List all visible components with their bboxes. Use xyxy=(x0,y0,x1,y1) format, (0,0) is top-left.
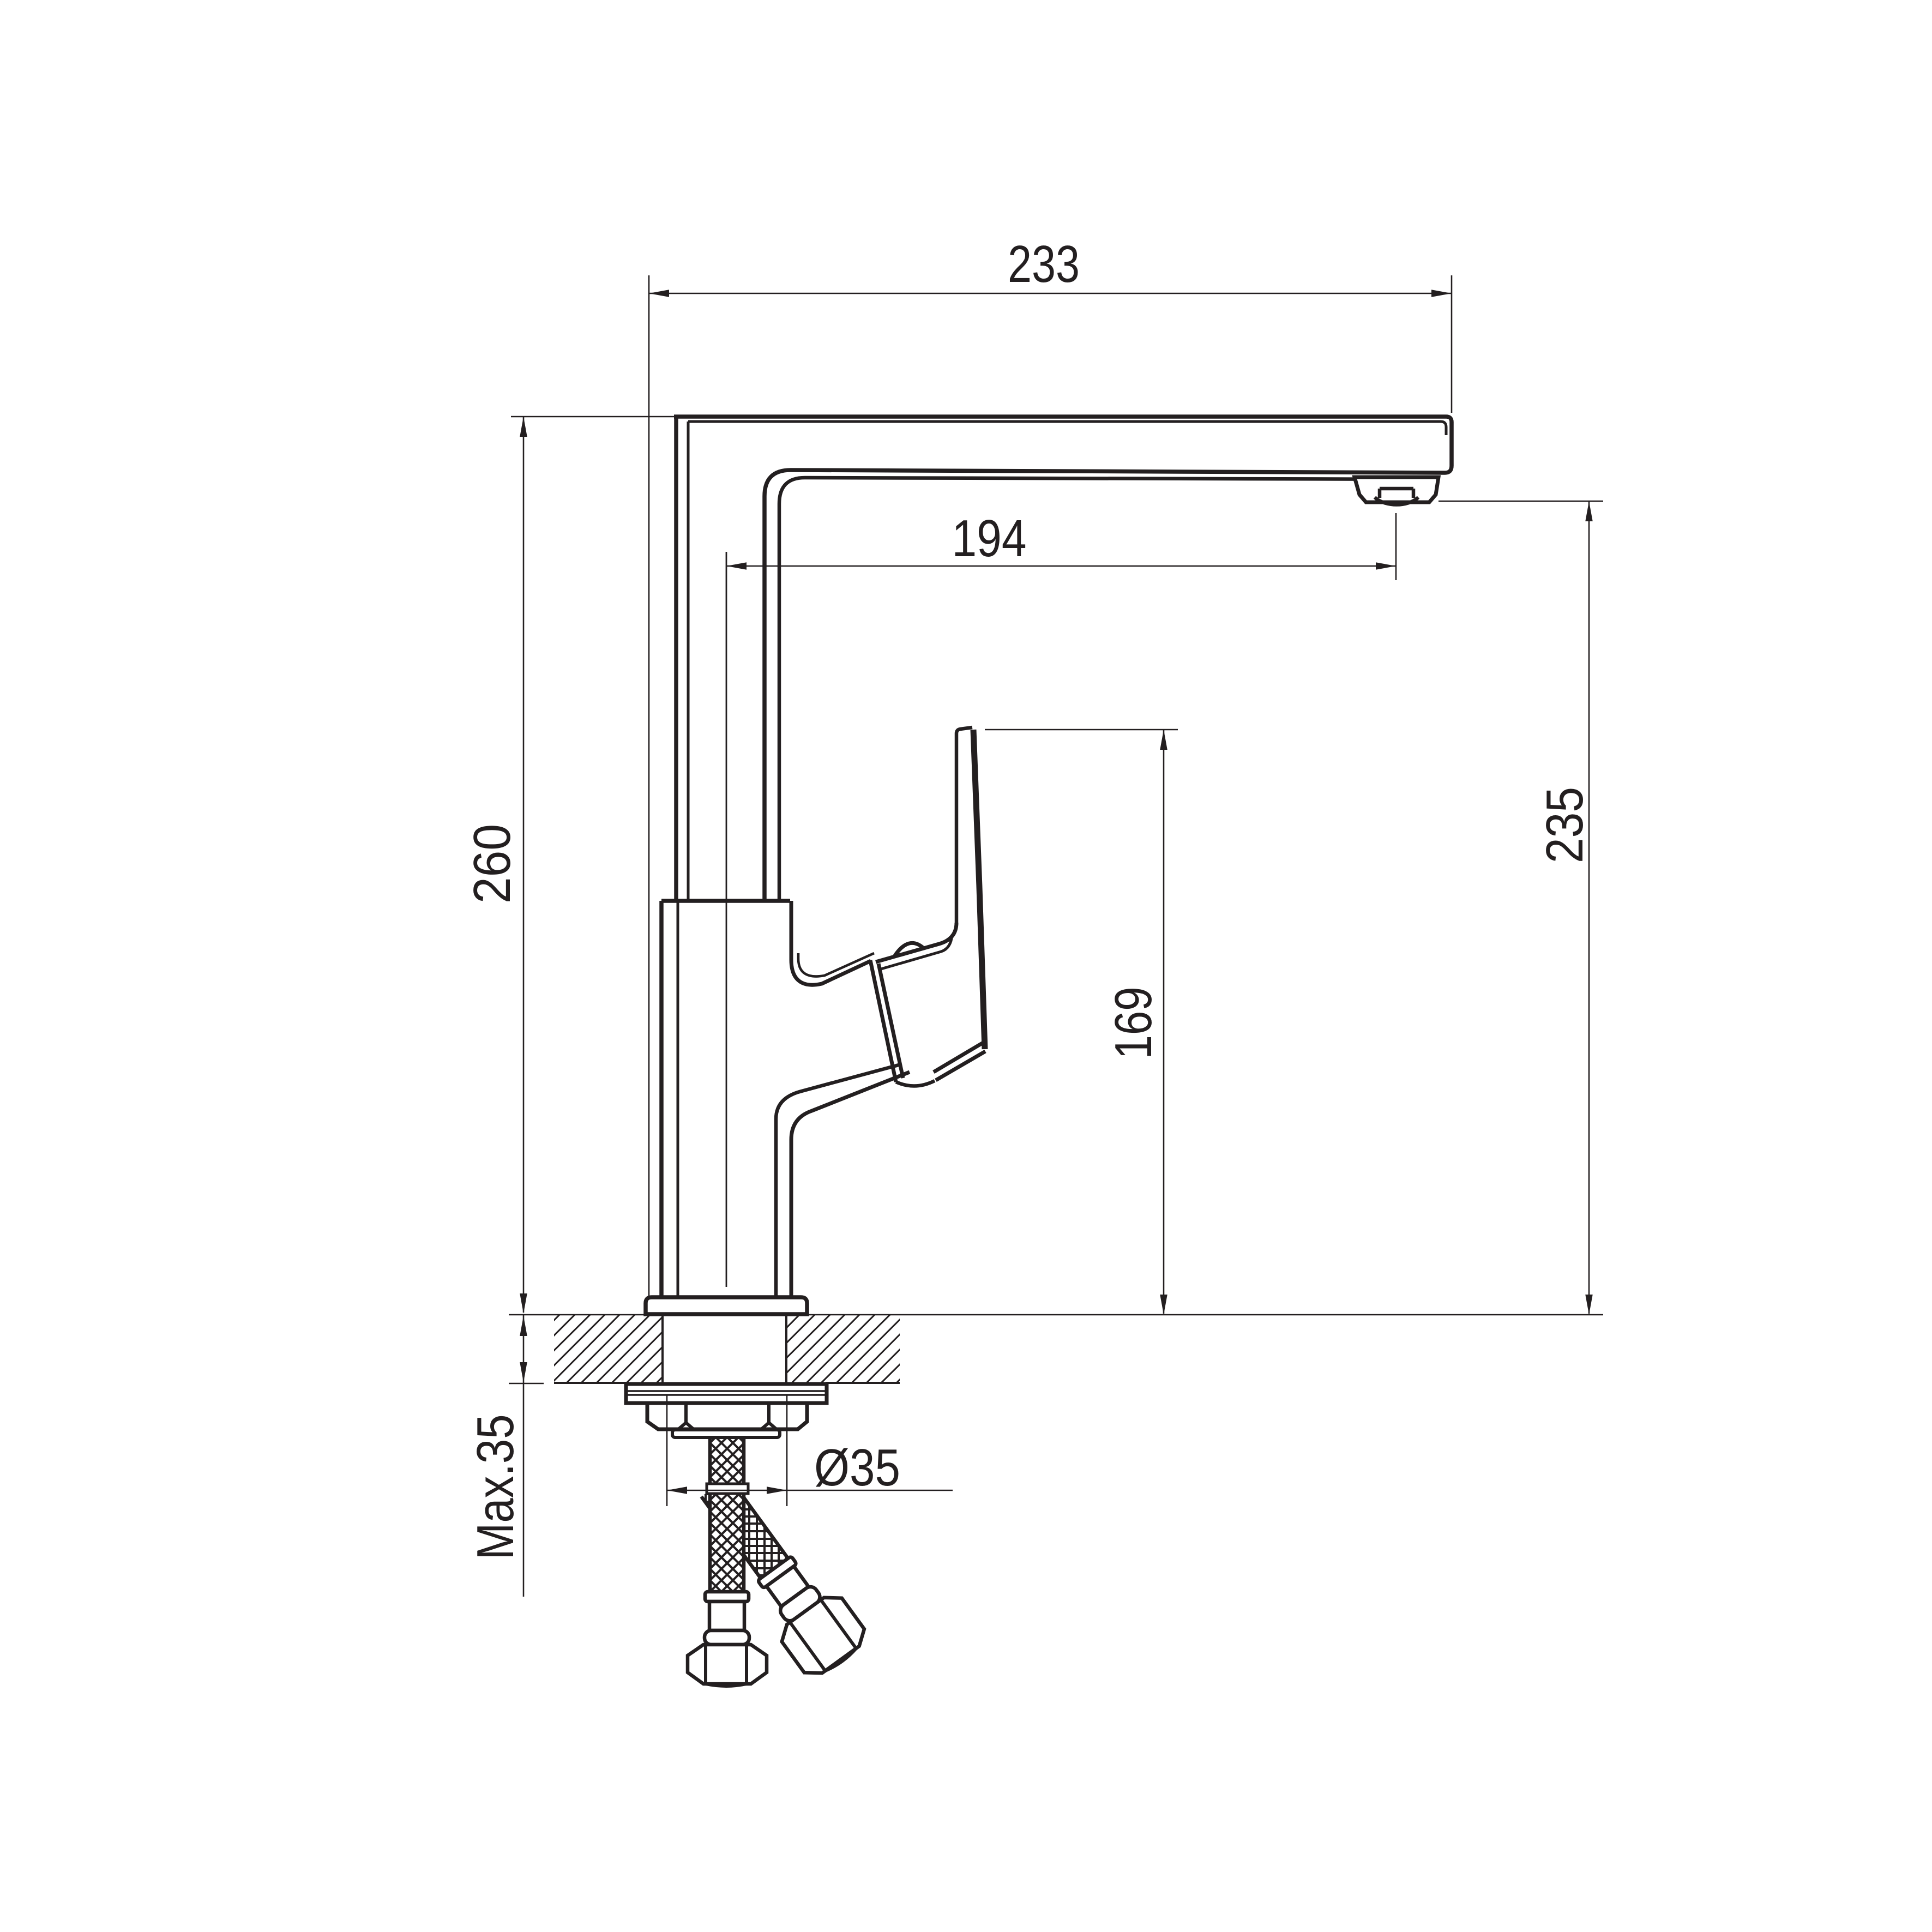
svg-text:Max.35: Max.35 xyxy=(466,1415,525,1560)
svg-text:235: 235 xyxy=(1536,787,1594,863)
svg-text:169: 169 xyxy=(1104,987,1163,1060)
svg-text:233: 233 xyxy=(1008,235,1080,293)
svg-text:194: 194 xyxy=(952,509,1027,568)
svg-text:260: 260 xyxy=(463,824,521,904)
svg-text:Ø35: Ø35 xyxy=(814,1439,900,1497)
